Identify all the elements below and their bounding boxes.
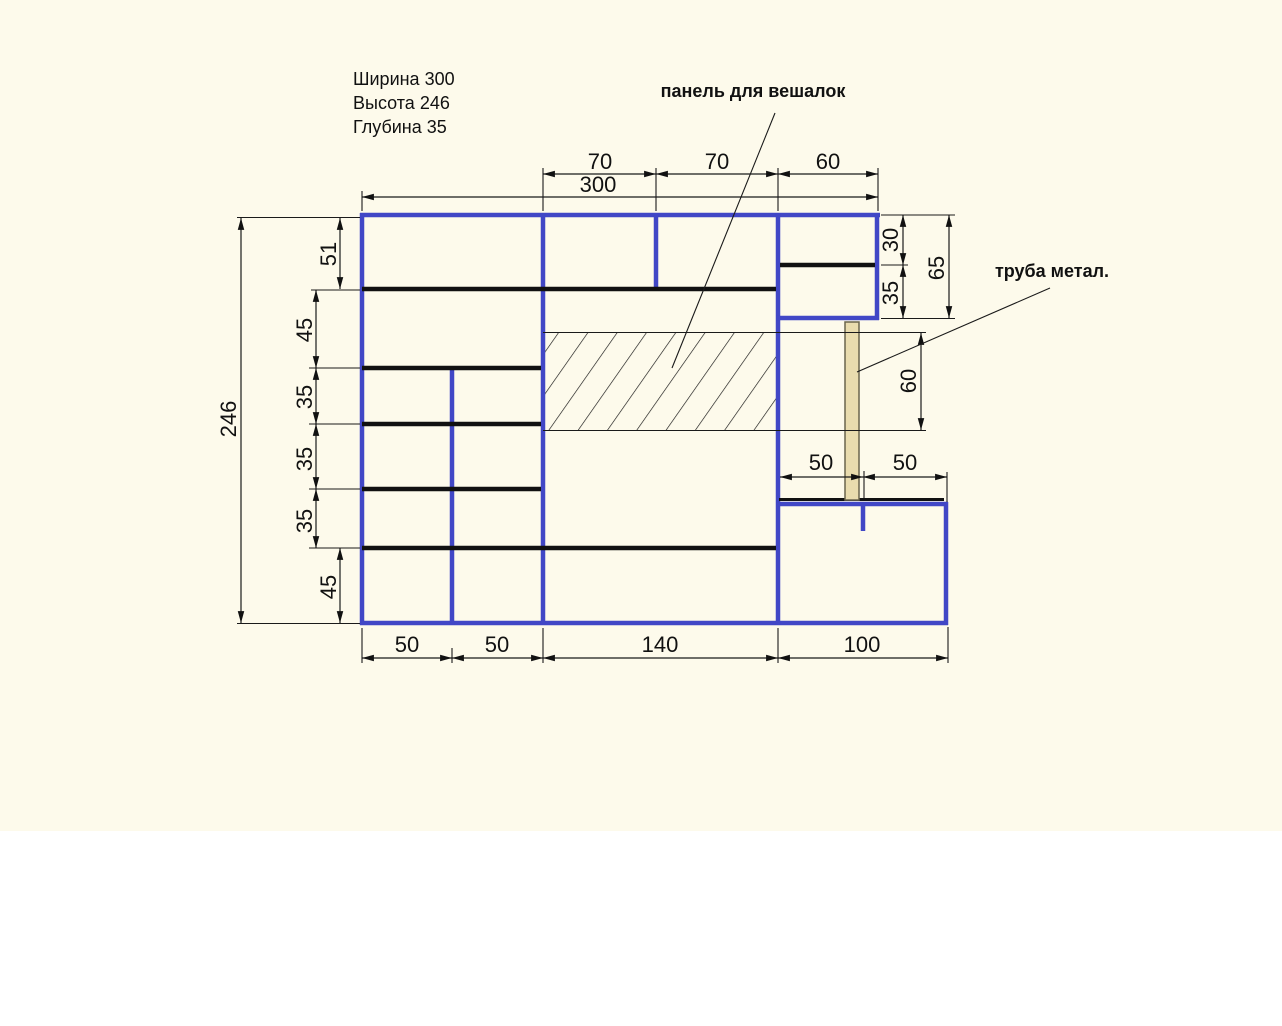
dim-left-35b: 35 [292,447,317,471]
dim-left-45a: 45 [292,318,317,342]
dim-mid-50-right: 50 [893,450,917,475]
dim-right-65: 65 [924,256,949,280]
paper-lower-band [0,831,1282,1026]
dim-left-246: 246 [216,401,241,438]
dim-top-70-left: 70 [588,149,612,174]
info-height: Высота 246 [353,93,450,113]
dim-mid-50-left: 50 [809,450,833,475]
drawing-canvas: Ширина 300 Высота 246 Глубина 35 панель … [0,0,1282,1026]
hanger-panel-hatch [545,333,777,430]
panel-label: панель для вешалок [661,81,847,101]
metal-pipe [845,322,859,500]
dim-bottom-50a: 50 [395,632,419,657]
wardrobe-dimension-drawing: Ширина 300 Высота 246 Глубина 35 панель … [0,0,1282,1026]
dim-top-60: 60 [816,149,840,174]
dim-top-300: 300 [580,172,617,197]
dim-bottom-100: 100 [844,632,881,657]
info-depth: Глубина 35 [353,117,447,137]
dim-top-70-right: 70 [705,149,729,174]
info-block: Ширина 300 Высота 246 Глубина 35 [353,69,455,137]
info-width: Ширина 300 [353,69,455,89]
dim-left-45b: 45 [316,575,341,599]
dim-right-35: 35 [878,281,903,305]
dim-left-51: 51 [316,242,341,266]
dim-left-35a: 35 [292,385,317,409]
dim-bottom-50b: 50 [485,632,509,657]
pipe-label: труба метал. [995,261,1109,281]
dim-bottom-140: 140 [642,632,679,657]
dim-left-35c: 35 [292,509,317,533]
dim-right-30: 30 [878,228,903,252]
dim-pipe-60: 60 [896,369,921,393]
